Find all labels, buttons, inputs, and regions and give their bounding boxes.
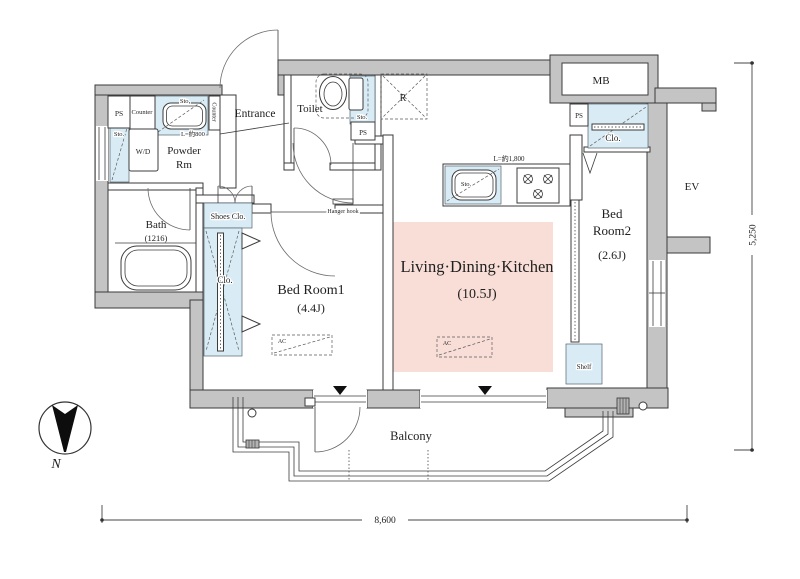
compass: N [39, 402, 91, 472]
label-bedroom2-size: (2.6J) [598, 248, 626, 262]
closet-door-mark-top [242, 233, 260, 249]
label-closet-bedroom1: Clo. [217, 275, 232, 285]
label-powder-room-2: Rm [176, 159, 192, 171]
balcony-door-opening [305, 390, 367, 408]
label-toilet: Toilet [297, 103, 323, 115]
dimension-width: 8,600 [100, 505, 689, 526]
door-toilet [294, 128, 331, 165]
label-north: N [50, 457, 61, 472]
door-hall-ldk [293, 143, 353, 203]
dimension-height: 5,250 [734, 61, 759, 452]
balcony-drain-right [639, 402, 647, 410]
label-hanger-hook: Hanger hook [327, 209, 358, 215]
label-meter-box: MB [592, 75, 609, 87]
window-right-wall [649, 260, 665, 327]
label-sto-toilet: Sto. [357, 114, 368, 121]
ac-box-bedroom1 [272, 335, 332, 355]
closet-door-mark-bottom [242, 316, 260, 332]
label-bedroom1-size: (4.4J) [297, 301, 325, 315]
label-ps-toilet: PS [359, 129, 367, 137]
kitchen-sink [452, 170, 496, 200]
bath-fixtures [115, 243, 196, 290]
label-dimension-height: 5,250 [749, 224, 759, 246]
label-bedroom2-1: Bed [602, 206, 623, 221]
label-powder-room-1: Powder [167, 145, 201, 157]
label-counter-powder: Counter [132, 109, 154, 116]
stove [517, 168, 559, 203]
label-elevator: EV [685, 181, 700, 193]
label-ps-topright: PS [575, 112, 583, 120]
label-ac-ldk: AC [443, 341, 451, 347]
label-ps-powder: PS [115, 109, 123, 118]
label-sto-powder-left: Sto. [114, 131, 125, 138]
label-ac-bedroom1: AC [278, 339, 286, 345]
label-sto-basin: Sto. [180, 98, 191, 105]
floor-plan-page: PS Counter Sto. L=約800 Counter Sto. W/D … [0, 0, 800, 579]
label-bath-size: (1216) [145, 233, 168, 243]
door-bedroom1 [271, 212, 335, 276]
label-sto-kitchen: Sto. [461, 181, 472, 188]
bathtub [121, 246, 191, 290]
window-left-wall [96, 126, 108, 181]
label-counter-length-kitchen: L=約1,800 [494, 154, 525, 163]
balcony-grate-right [617, 398, 629, 414]
door-bedroom2-folding [583, 153, 597, 173]
label-ldk-size: (10.5J) [457, 287, 497, 302]
compass-needle [52, 405, 78, 452]
label-bedroom1: Bed Room1 [277, 283, 344, 298]
toilet-tank [349, 78, 363, 110]
door-entrance [220, 30, 278, 88]
toilet-bowl [320, 77, 347, 110]
label-ldk: Living·Dining·Kitchen [400, 257, 553, 276]
door-balcony [315, 407, 360, 452]
balcony-drain-left [248, 409, 256, 417]
label-bedroom2-2: Room2 [593, 223, 631, 238]
label-counter-vertical: Counter [211, 102, 217, 121]
label-dimension-width: 8,600 [374, 516, 396, 526]
label-shoes-closet: Shoes Clo. [211, 212, 246, 221]
label-bath: Bath [146, 219, 167, 231]
floor-plan-drawing: PS Counter Sto. L=約800 Counter Sto. W/D … [0, 0, 800, 579]
label-entrance: Entrance [235, 108, 276, 120]
label-shelf: Shelf [577, 363, 592, 371]
label-balcony: Balcony [390, 429, 432, 443]
label-fridge-space: R [400, 93, 407, 104]
label-closet-bedroom2: Clo. [605, 133, 620, 143]
label-washer-dryer: W/D [136, 147, 151, 156]
balcony-grate-left [246, 440, 259, 448]
bedroom2-sliding-track [571, 200, 579, 342]
label-counter-length-powder: L=約800 [181, 129, 205, 138]
